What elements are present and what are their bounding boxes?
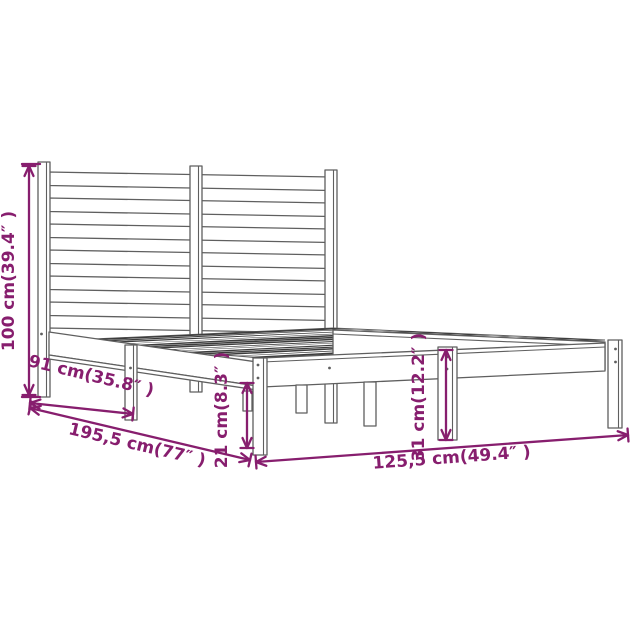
headboard-post-right bbox=[325, 170, 337, 423]
dimension-clearance-label: 21 cm(8.3″ ) bbox=[212, 352, 232, 469]
dimension-height-label: 100 cm(39.4″ ) bbox=[0, 211, 19, 351]
leg-foot-far bbox=[608, 340, 622, 428]
bed-frame bbox=[38, 162, 622, 455]
dimension-platform-height-label: 31 cm(12.2″ ) bbox=[409, 333, 429, 461]
bed-frame-dimension-diagram: 100 cm(39.4″ ) 91 cm(35.8″ ) 195,5 cm(77… bbox=[0, 0, 640, 640]
leg-rear-small-2 bbox=[296, 385, 307, 413]
leg-foot-near-corner bbox=[253, 358, 267, 455]
leg-foot-center bbox=[438, 347, 457, 440]
screw-dot bbox=[328, 367, 331, 370]
diagram-canvas: 100 cm(39.4″ ) 91 cm(35.8″ ) 195,5 cm(77… bbox=[0, 0, 640, 640]
leg-rear-small-3 bbox=[364, 382, 376, 426]
